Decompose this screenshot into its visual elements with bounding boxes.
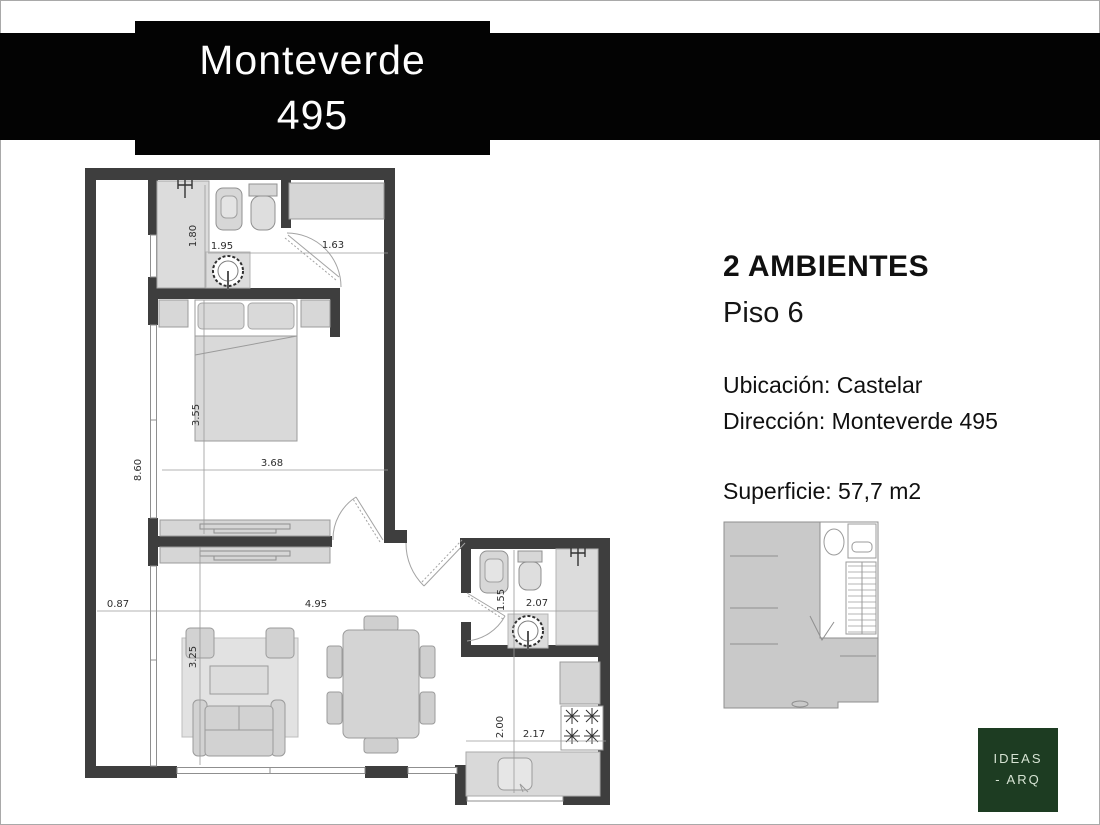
address-label: Dirección: Monteverde 495: [723, 408, 998, 435]
armchair: [266, 628, 294, 658]
shower: [556, 549, 598, 645]
chair: [327, 692, 342, 724]
banner-title-line1: Monteverde: [199, 40, 426, 81]
rooms-label: 2 AMBIENTES: [723, 250, 929, 284]
pillow: [248, 303, 294, 329]
shower: [157, 181, 209, 288]
pillow: [198, 303, 244, 329]
logo-line1: IDEAS: [993, 751, 1042, 768]
entrance-door-arc: [406, 543, 424, 586]
dining-set: [327, 616, 435, 753]
banner-title-line2: 495: [277, 95, 348, 136]
chair: [420, 646, 435, 678]
chair: [327, 646, 342, 678]
stove: [561, 706, 603, 750]
dim-living-height: 3.25: [188, 646, 199, 668]
bedroom-door-leaf: [356, 497, 383, 540]
dim-bath-width: 1.95: [211, 241, 233, 252]
chair: [420, 692, 435, 724]
nightstand-right: [301, 300, 330, 327]
coffee-table: [210, 666, 268, 694]
fridge: [560, 662, 600, 704]
toilet-tank: [249, 184, 277, 196]
dim-wc-height: 1.55: [496, 589, 507, 611]
chair: [364, 738, 398, 753]
chair: [364, 616, 398, 631]
dim-bedroom-height: 3.55: [191, 404, 202, 426]
location-label: Ubicación: Castelar: [723, 372, 922, 399]
dim-bedroom-width: 3.68: [261, 458, 283, 469]
floor-label: Piso 6: [723, 297, 804, 330]
living-room: [182, 628, 298, 756]
dim-wc-width: 2.07: [526, 598, 548, 609]
counter: [466, 752, 600, 796]
floor-plan-drawing: 1.95 1.63 1.80 3.68 3.55 8.60 0.87 4.95 …: [85, 165, 615, 810]
closet: [289, 183, 384, 219]
bathroom: [157, 180, 277, 290]
dining-table: [343, 630, 419, 738]
toilet-tank: [518, 551, 542, 562]
dim-living-width: 4.95: [305, 599, 327, 610]
entrance-door-leaf: [424, 543, 465, 586]
logo-line2: - ARQ: [995, 772, 1040, 789]
nightstand-left: [159, 300, 188, 327]
dim-balcony-width: 0.87: [107, 599, 129, 610]
toilet: [251, 196, 275, 230]
bed: [159, 300, 330, 441]
area-label: Superficie: 57,7 m2: [723, 478, 921, 505]
stair-core: [820, 522, 878, 638]
dim-kitchen-width: 2.17: [523, 729, 545, 740]
dim-closet-width: 1.63: [322, 240, 344, 251]
dim-kitchen-height: 2.00: [495, 716, 506, 738]
toilet: [519, 562, 541, 590]
key-plan-thumbnail: [718, 516, 888, 714]
sink: [498, 758, 532, 790]
dim-balcony-length: 8.60: [133, 459, 144, 481]
ideas-arq-logo: IDEAS - ARQ: [978, 728, 1058, 812]
bedroom-door-arc: [333, 497, 356, 540]
toilette-door-arc: [467, 616, 505, 641]
banner-title-box: Monteverde 495: [135, 21, 490, 155]
dim-bath-height: 1.80: [188, 225, 199, 247]
floor-plan-slide: { "banner": { "line1": "Monteverde", "li…: [0, 0, 1100, 825]
